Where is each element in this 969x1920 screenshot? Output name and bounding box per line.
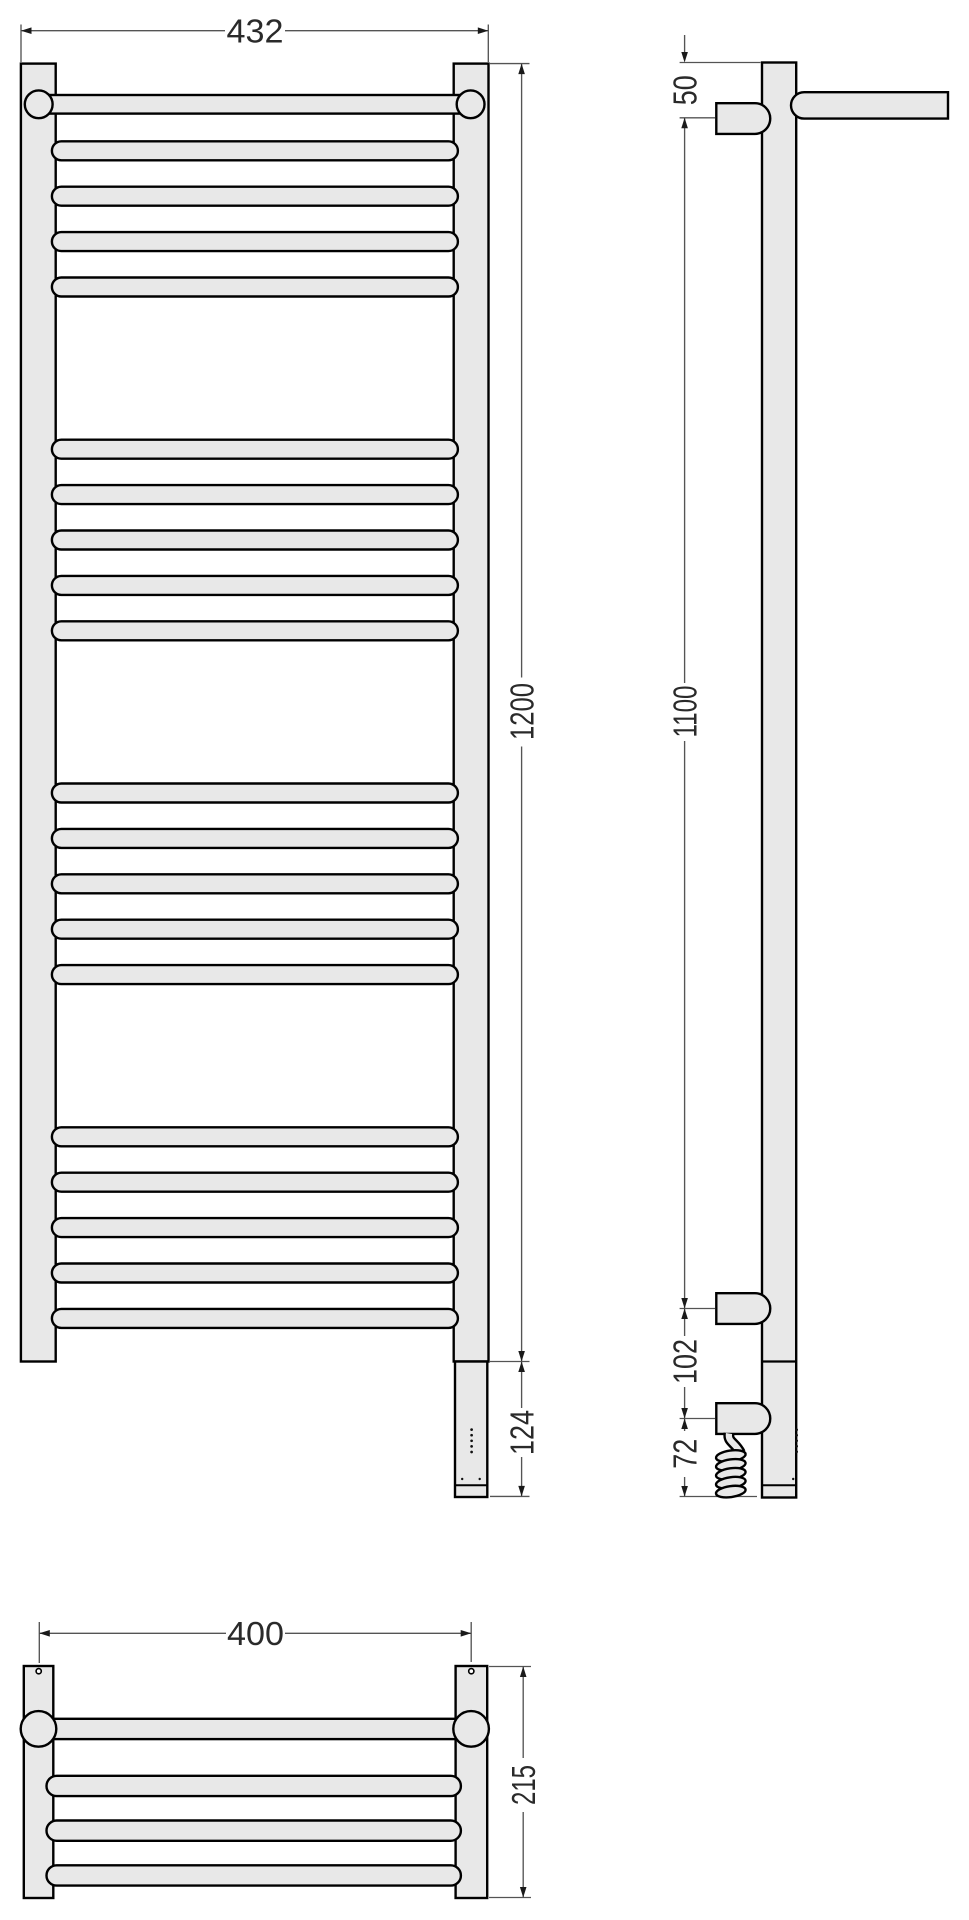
svg-text:102: 102 (666, 1339, 703, 1384)
svg-text:1100: 1100 (666, 686, 703, 738)
svg-text:1200: 1200 (503, 683, 540, 740)
svg-text:432: 432 (227, 13, 284, 50)
svg-text:50: 50 (666, 75, 703, 105)
svg-text:72: 72 (666, 1439, 703, 1469)
svg-text:215: 215 (505, 1765, 542, 1805)
svg-text:124: 124 (503, 1410, 540, 1455)
svg-text:400: 400 (227, 1615, 284, 1652)
